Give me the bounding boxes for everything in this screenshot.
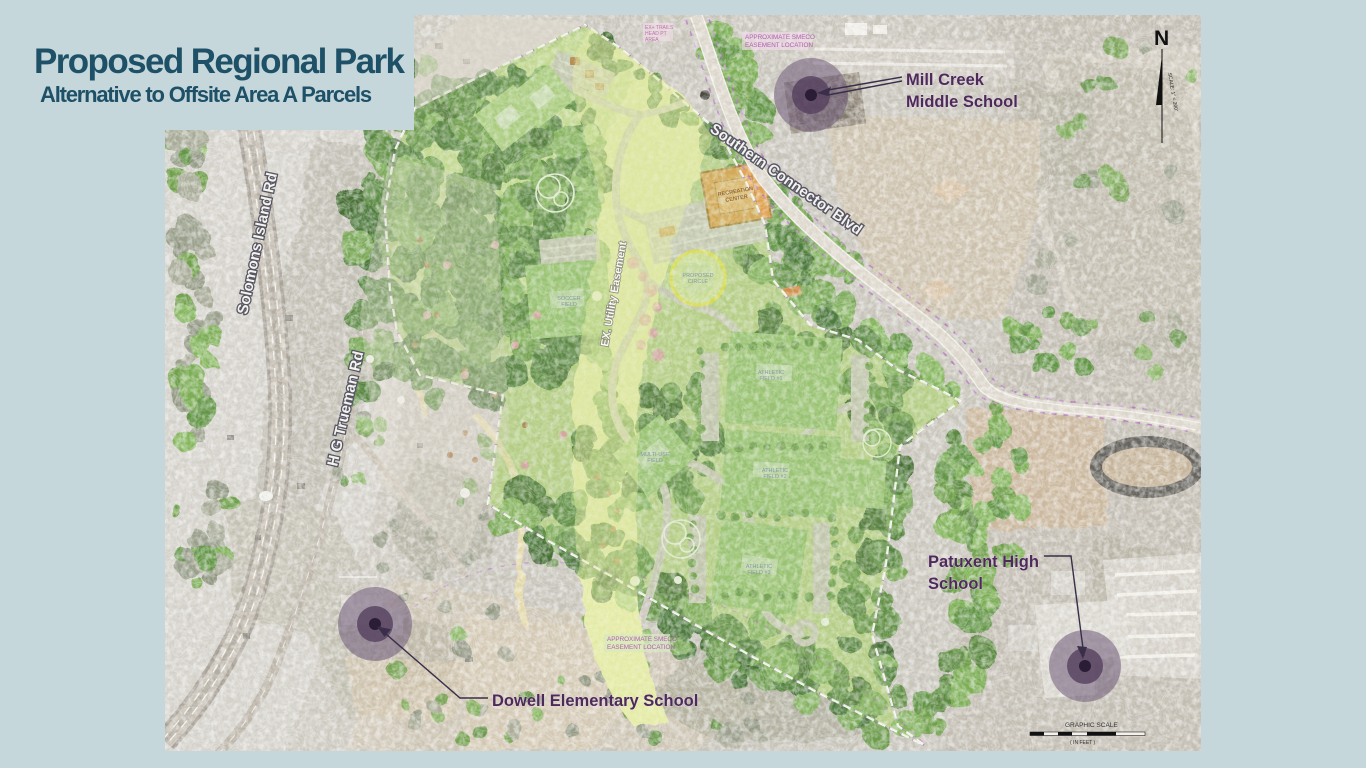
svg-text:FIELD #3: FIELD #3 <box>747 570 770 576</box>
svg-text:School: School <box>928 575 983 593</box>
svg-text:Dowell Elementary School: Dowell Elementary School <box>492 692 698 710</box>
svg-text:N: N <box>1154 27 1169 50</box>
svg-text:FIELD #2: FIELD #2 <box>763 474 786 480</box>
svg-text:FIELD: FIELD <box>561 302 577 308</box>
svg-text:APPROXIMATE SMECO: APPROXIMATE SMECO <box>745 34 815 41</box>
svg-text:Middle School: Middle School <box>906 93 1018 111</box>
svg-text:FIELD #1: FIELD #1 <box>759 376 782 382</box>
svg-text:FIELD: FIELD <box>647 458 663 464</box>
svg-text:EASEMENT LOCATION: EASEMENT LOCATION <box>607 644 675 651</box>
svg-text:Patuxent High: Patuxent High <box>928 553 1039 571</box>
svg-text:Mill Creek: Mill Creek <box>906 71 985 89</box>
svg-text:( IN FEET ): ( IN FEET ) <box>1070 740 1096 746</box>
svg-text:CIRCLE: CIRCLE <box>688 279 709 285</box>
svg-text:EASEMENT LOCATION: EASEMENT LOCATION <box>745 42 813 49</box>
svg-text:AREA: AREA <box>645 37 659 43</box>
svg-text:GRAPHIC SCALE: GRAPHIC SCALE <box>1065 722 1118 729</box>
svg-text:APPROXIMATE SMECO: APPROXIMATE SMECO <box>607 636 677 643</box>
